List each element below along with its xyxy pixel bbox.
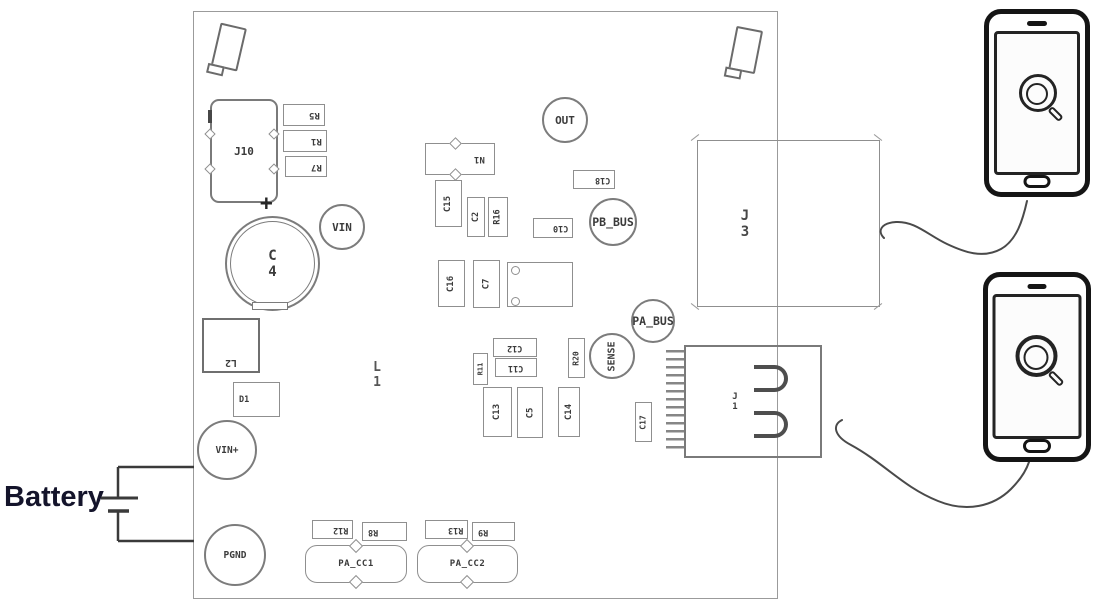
capacitor-c15: C15 [435, 180, 462, 227]
testpoint-out: OUT [542, 97, 588, 143]
c12-label: C12 [507, 343, 522, 353]
out-label: OUT [555, 114, 575, 127]
inductor-l2: L2 [202, 318, 260, 373]
j10-pin1-mark [208, 110, 212, 123]
testpoint-sense: SENSE [589, 333, 635, 379]
c18-label: C18 [595, 175, 610, 185]
r7-label: R7 [311, 162, 322, 172]
resistor-r11: R11 [473, 353, 488, 385]
r11-label: R11 [477, 363, 485, 376]
pcb-evaluation-diagram: J10 R5 R1 R7 + C4 VIN L2 D1 VIN+ PGND N1… [0, 0, 1100, 609]
capacitor-c7: C7 [473, 260, 500, 308]
l2-label: L2 [225, 357, 237, 368]
phone-top [984, 9, 1090, 197]
component-footprint [507, 262, 573, 307]
diode-d1: D1 [233, 382, 280, 417]
j1-shield-contact [754, 365, 788, 392]
j3-label: J3 [738, 208, 752, 240]
plus-label: + [260, 191, 273, 215]
connector-j3: J3 [697, 140, 880, 307]
capacitor-c2: C2 [467, 197, 485, 237]
phone-screen [993, 294, 1082, 439]
capacitor-c18: C18 [573, 170, 615, 189]
phone-speaker [1027, 21, 1047, 26]
j1-pin-comb [666, 350, 685, 454]
r13-label: R13 [448, 525, 463, 535]
battery-text: Battery [4, 481, 104, 513]
capacitor-c11: C11 [495, 358, 537, 377]
phone-home-button [1023, 439, 1051, 453]
mount-tab-body [728, 26, 763, 74]
c15-label: C15 [443, 195, 453, 211]
n1-label: N1 [474, 154, 485, 164]
mount-tab-foot [724, 66, 743, 79]
j1-shield-contact [754, 411, 788, 438]
pa-cc1-label: PA_CC1 [338, 559, 374, 569]
resistor-r9: R9 [472, 522, 515, 541]
c7-label: C7 [482, 279, 492, 290]
connector-j10: J10 [210, 99, 278, 203]
resistor-r20: R20 [568, 338, 585, 378]
pb-bus-label: PB_BUS [592, 215, 634, 229]
resistor-r1: R1 [283, 130, 327, 152]
j10-label: J10 [234, 145, 254, 158]
phone-bottom [983, 272, 1091, 462]
r5-label: R5 [309, 110, 320, 120]
phone-home-button [1024, 175, 1051, 188]
pa-cc2-label: PA_CC2 [450, 559, 486, 569]
capacitor-c5: C5 [517, 387, 543, 438]
resistor-r12: R12 [312, 520, 353, 539]
testpoint-pa-bus: PA_BUS [631, 299, 675, 343]
magnifier-handle-icon [1047, 106, 1063, 122]
c4-plus-mark: + [260, 191, 273, 215]
r20-label: R20 [572, 351, 581, 365]
pa-bus-label: PA_BUS [632, 314, 674, 328]
capacitor-c10: C10 [533, 218, 573, 238]
testpoint-pb-bus: PB_BUS [589, 198, 637, 246]
phone-speaker [1028, 284, 1047, 289]
r16-label: R16 [493, 209, 503, 224]
c11-label: C11 [508, 363, 523, 373]
magnifier-inner-ring [1026, 83, 1048, 105]
pgnd-label: PGND [224, 550, 247, 561]
magnifier-inner-ring [1024, 345, 1049, 370]
footprint-hole [511, 297, 520, 306]
testpoint-vin: VIN [319, 204, 365, 250]
c4-label: C4 [266, 248, 280, 280]
terminal-pgnd: PGND [204, 524, 266, 586]
capacitor-c13: C13 [483, 387, 512, 437]
c5-label: C5 [525, 407, 535, 418]
c10-label: C10 [553, 223, 568, 233]
footprint-hole [511, 266, 520, 275]
phone-screen [994, 31, 1080, 175]
c4-bottom-notch [252, 302, 288, 310]
cable-top [881, 201, 1027, 254]
battery-label: Battery [4, 481, 104, 514]
vin-label: VIN [332, 221, 352, 234]
component-n1: N1 [425, 143, 495, 175]
d1-label: D1 [239, 395, 249, 405]
inductor-l1-label: L1 [364, 360, 390, 390]
resistor-r8: R8 [362, 522, 407, 541]
r8-label: R8 [368, 527, 378, 537]
resistor-r7: R7 [285, 156, 327, 177]
capacitor-c16: C16 [438, 260, 465, 307]
l1-label: L1 [371, 360, 384, 390]
resistor-r5: R5 [283, 104, 325, 126]
capacitor-c17: C17 [635, 402, 652, 442]
r1-label: R1 [311, 136, 322, 146]
magnifier-handle-icon [1048, 370, 1065, 387]
connector-j1: J1 [684, 345, 822, 458]
capacitor-c14: C14 [558, 387, 580, 437]
c13-label: C13 [492, 404, 502, 420]
resistor-r16: R16 [488, 197, 508, 237]
c17-label: C17 [639, 415, 648, 429]
vin-plus-label: VIN+ [216, 445, 239, 456]
j1-label: J1 [730, 392, 739, 412]
capacitor-c4: C4 [225, 216, 320, 311]
resistor-r13: R13 [425, 520, 468, 539]
sense-label: SENSE [606, 341, 617, 371]
r9-label: R9 [478, 527, 488, 537]
terminal-vin-plus: VIN+ [197, 420, 257, 480]
r12-label: R12 [333, 525, 348, 535]
capacitor-c12: C12 [493, 338, 537, 357]
c2-label: C2 [471, 212, 481, 222]
c16-label: C16 [446, 275, 456, 291]
c14-label: C14 [564, 404, 574, 420]
